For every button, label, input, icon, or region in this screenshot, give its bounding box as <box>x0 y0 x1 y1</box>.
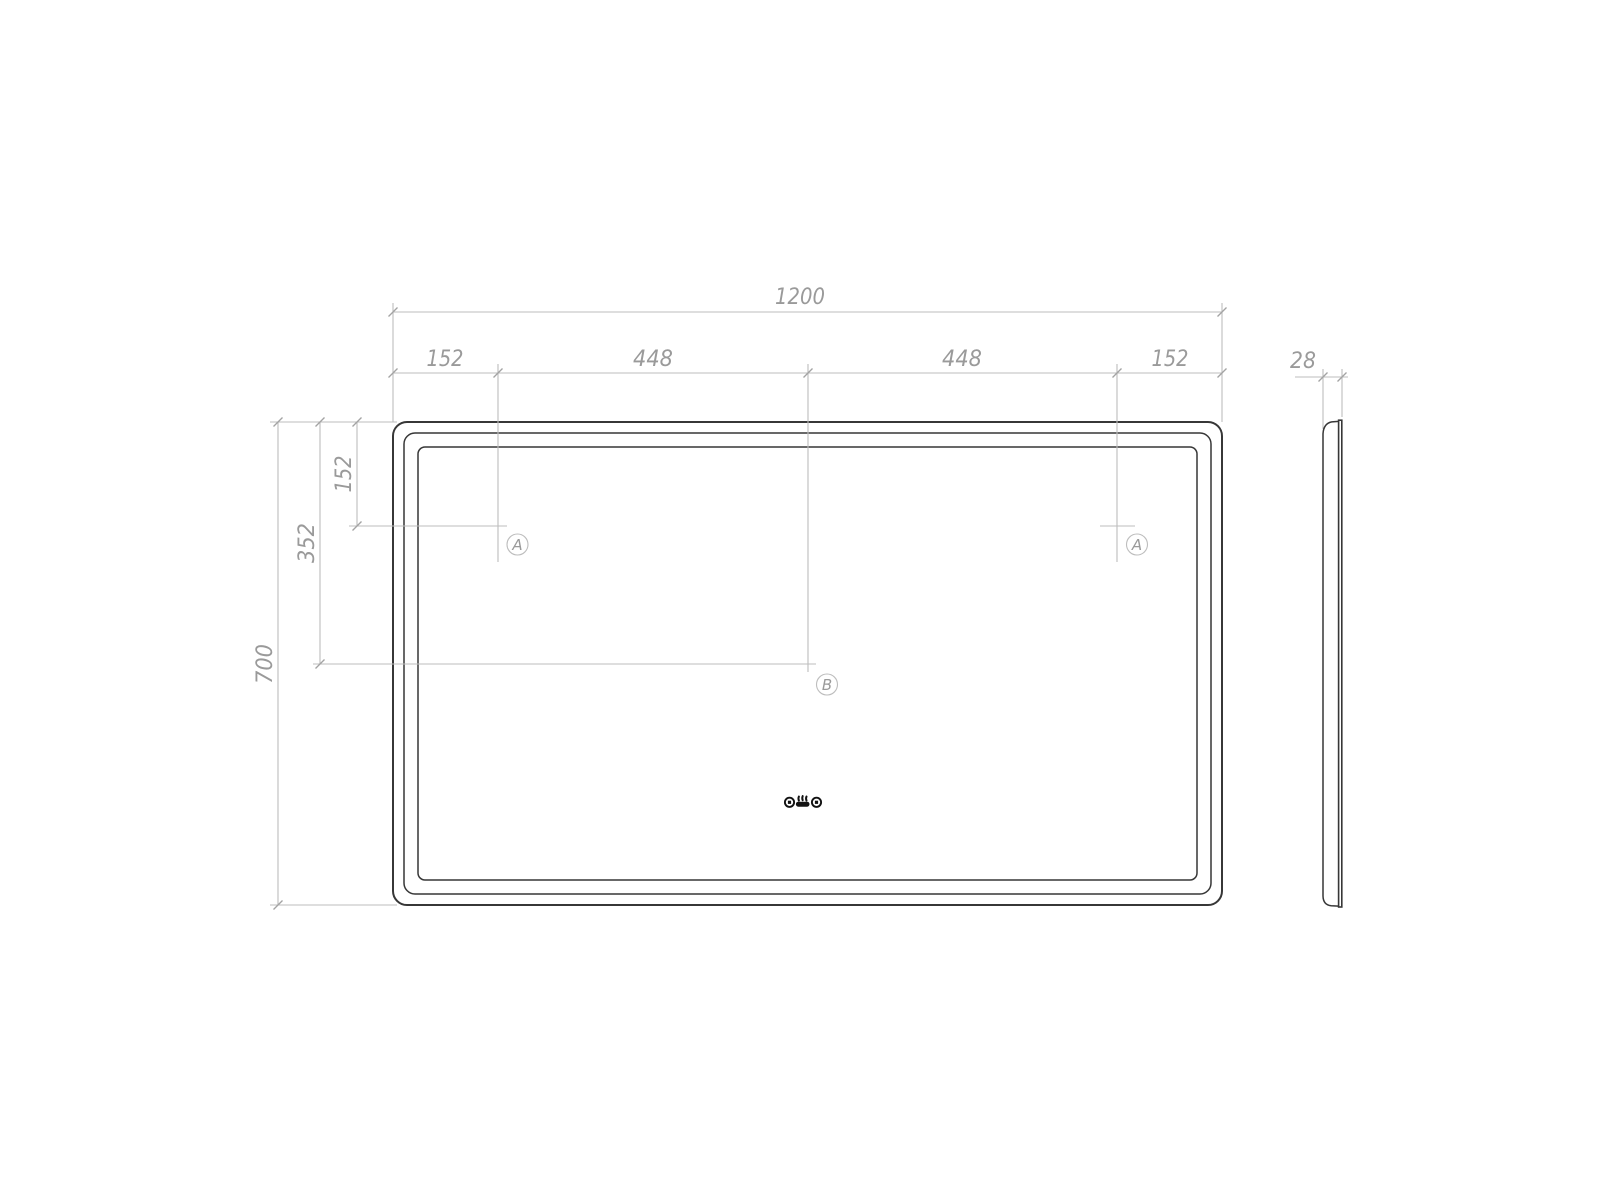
dim-label-offset-352: 352 <box>295 523 320 563</box>
marker-letters: A A B <box>511 536 1142 694</box>
dimension-lines <box>270 303 1348 905</box>
side-profile-housing <box>1323 421 1339 906</box>
touch-sensor-icon <box>812 798 821 807</box>
touch-sensor-icon <box>785 798 794 807</box>
dim-label-thickness: 28 <box>1290 349 1316 374</box>
marker-label-b: B <box>822 676 832 694</box>
dim-label-sub-width-4: 152 <box>1152 347 1189 372</box>
dim-label-sub-width-2: 448 <box>633 347 673 372</box>
marker-circles <box>507 534 1148 695</box>
position-markers: A A B <box>507 534 1148 695</box>
dimension-ticks <box>274 308 1347 910</box>
dim-label-total-width: 1200 <box>775 285 825 310</box>
control-icons <box>785 796 821 807</box>
marker-label-a-left: A <box>511 536 522 554</box>
touch-sensor-dot <box>788 801 791 804</box>
dim-label-sub-width-1: 152 <box>427 347 464 372</box>
defogger-base <box>796 802 810 807</box>
marker-label-a-right: A <box>1131 536 1142 554</box>
touch-sensor-dot <box>815 801 818 804</box>
side-view <box>1323 420 1342 907</box>
dim-label-height: 700 <box>253 644 278 684</box>
dim-label-sub-width-3: 448 <box>942 347 982 372</box>
dim-label-offset-152: 152 <box>332 456 357 493</box>
drawing-sheet: 1200 152 448 448 152 28 700 352 152 A A … <box>0 0 1600 1200</box>
side-profile-glass <box>1339 420 1342 907</box>
dimension-labels: 1200 152 448 448 152 28 700 352 152 <box>253 285 1316 684</box>
defogger-icon <box>796 796 810 807</box>
technical-drawing: 1200 152 448 448 152 28 700 352 152 A A … <box>0 0 1600 1200</box>
